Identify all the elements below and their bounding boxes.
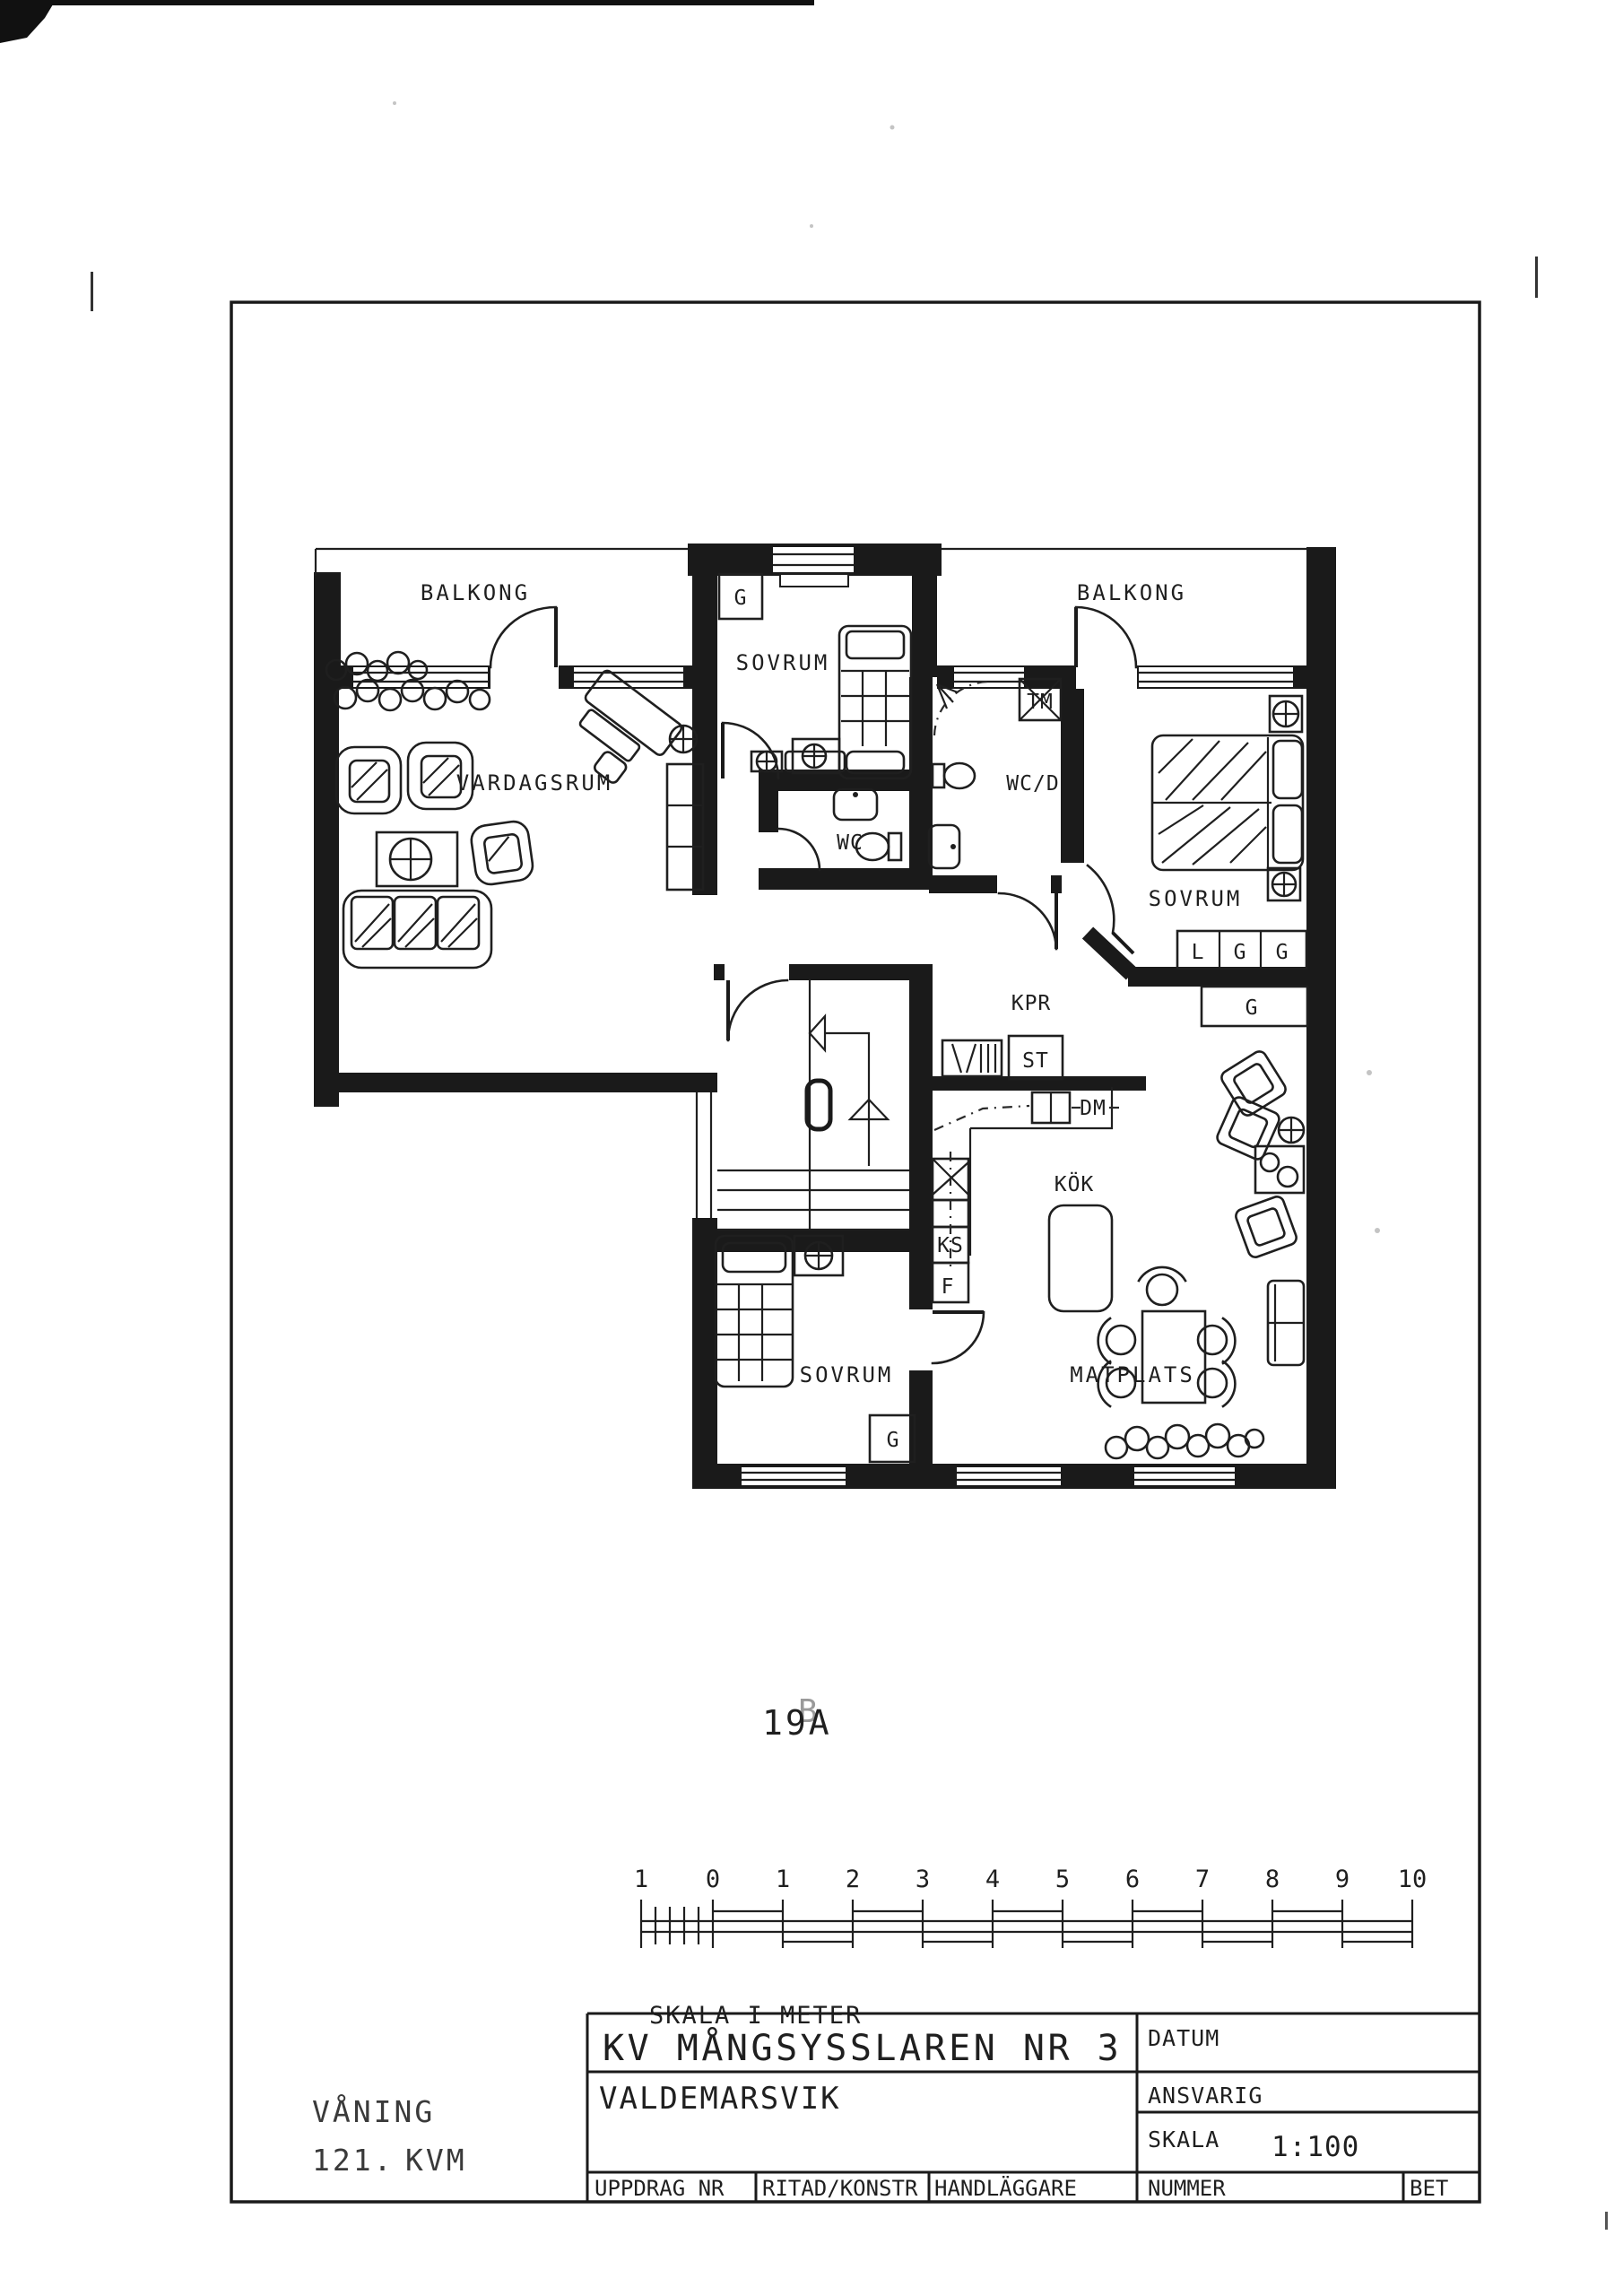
label-tm: TM <box>1027 691 1054 714</box>
bet-label: BET <box>1410 2176 1448 2201</box>
scale-tick-label: 0 <box>706 1865 720 1893</box>
ritad-konstr-label: RITAD/KONSTR <box>762 2176 918 2201</box>
label-dm: DM <box>1080 1097 1107 1120</box>
datum-label: DATUM <box>1148 2025 1219 2051</box>
vaning-label: VÅNING <box>312 2093 435 2129</box>
scale-caption: SKALA I METER <box>649 2002 862 2030</box>
bedroom-top-furniture <box>793 626 911 778</box>
scale-tick-label: 8 <box>1265 1865 1280 1893</box>
label-g-wardrobe-2: G <box>1276 941 1289 964</box>
label-sovrum-right: SOVRUM <box>1149 886 1243 911</box>
scale-tick-label: 2 <box>846 1865 860 1893</box>
stairwell <box>717 979 909 1231</box>
project-title: KV MÅNGSYSSLAREN NR 3 <box>603 2026 1122 2069</box>
plan-number: B 19A <box>762 1693 832 1743</box>
margin-note: VÅNING 121. KVM <box>312 2093 467 2178</box>
scale-tick-label: 4 <box>985 1865 1000 1893</box>
closets <box>719 574 1307 1462</box>
label-ks: KS <box>937 1234 964 1257</box>
handlaggare-label: HANDLÄGGARE <box>934 2175 1077 2201</box>
skala-value: 1:100 <box>1271 2131 1359 2163</box>
sofa <box>343 891 491 968</box>
label-vardagsrum: VARDAGSRUM <box>456 770 613 796</box>
scale-tick-label: 1 <box>634 1865 648 1893</box>
label-kok: KÖK <box>1055 1171 1095 1196</box>
label-balkong-right: BALKONG <box>1077 580 1186 605</box>
tray-table <box>1255 1146 1304 1193</box>
scale-tick-label: 5 <box>1055 1865 1070 1893</box>
ansvarig-label: ANSVARIG <box>1148 2083 1263 2109</box>
kitchen-dining-furniture <box>1098 1048 1304 1406</box>
floor-plan-sheet: BALKONG BALKONG VARDAGSRUM SOVRUM SOVRUM… <box>0 0 1623 2296</box>
label-g-bottom: G <box>887 1429 900 1452</box>
label-kpr: KPR <box>1011 992 1052 1015</box>
scale-bar: 1 0 1 2 3 4 5 6 7 8 9 10 SKALA I METER <box>634 1865 1427 2030</box>
nummer-label: NUMMER <box>1148 2176 1226 2201</box>
scan-artifacts <box>0 0 1608 2230</box>
side-table-lamp <box>670 726 697 752</box>
label-st: ST <box>1022 1049 1049 1073</box>
label-l-wardrobe: L <box>1192 941 1205 964</box>
coffee-table <box>377 832 457 886</box>
scale-tick-label: 3 <box>916 1865 930 1893</box>
armchair <box>1215 1095 1281 1161</box>
dining-table <box>1142 1311 1205 1403</box>
label-g-closet-top: G <box>734 587 748 610</box>
location-text: VALDEMARSVIK <box>599 2081 841 2117</box>
label-g-hall: G <box>1245 996 1259 1020</box>
skala-label: SKALA <box>1148 2126 1219 2152</box>
label-g-wardrobe-1: G <box>1234 941 1247 964</box>
scale-tick-label: 7 <box>1195 1865 1210 1893</box>
scale-tick-label: 1 <box>776 1865 790 1893</box>
living-room-furniture <box>336 669 703 968</box>
room-labels: BALKONG BALKONG VARDAGSRUM SOVRUM SOVRUM… <box>421 580 1289 1452</box>
title-block: KV MÅNGSYSSLAREN NR 3 DATUM VALDEMARSVIK… <box>587 2013 1480 2202</box>
label-f: F <box>942 1275 955 1299</box>
area-unit: KVM <box>405 2143 467 2178</box>
label-matplats: MATPLATS <box>1070 1362 1195 1387</box>
label-sovrum-top: SOVRUM <box>736 650 830 675</box>
kitchen-fixtures <box>933 1087 1123 1311</box>
bedroom-right-furniture <box>1152 696 1303 900</box>
label-wc: WC <box>837 831 864 855</box>
label-balkong-left: BALKONG <box>421 580 530 605</box>
scale-ticks <box>641 1900 1412 1948</box>
scale-tick-label: 9 <box>1335 1865 1350 1893</box>
uppdrag-nr-label: UPPDRAG NR <box>595 2176 725 2201</box>
armchair <box>1234 1195 1298 1259</box>
plan-number-text: 19A <box>762 1703 832 1743</box>
label-wc-d: WC/D <box>1006 772 1059 796</box>
sofa-small <box>1268 1281 1304 1365</box>
area-value: 121. <box>312 2143 394 2178</box>
chair <box>470 820 535 886</box>
armchair <box>336 747 401 813</box>
scale-tick-label: 6 <box>1125 1865 1140 1893</box>
side-table-lamp <box>1279 1118 1304 1143</box>
label-sovrum-bottom: SOVRUM <box>800 1362 894 1387</box>
scale-tick-label: 10 <box>1398 1865 1428 1893</box>
